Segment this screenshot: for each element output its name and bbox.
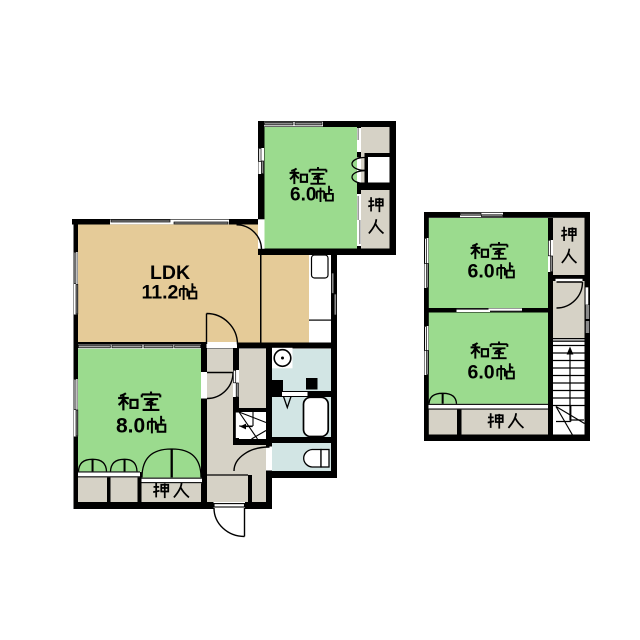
svg-text:11.2: 11.2: [142, 282, 179, 304]
svg-text:6.0: 6.0: [468, 362, 495, 384]
svg-text:6.0: 6.0: [290, 185, 316, 206]
svg-text:6.0: 6.0: [468, 261, 495, 283]
svg-text:8.0: 8.0: [116, 415, 145, 438]
